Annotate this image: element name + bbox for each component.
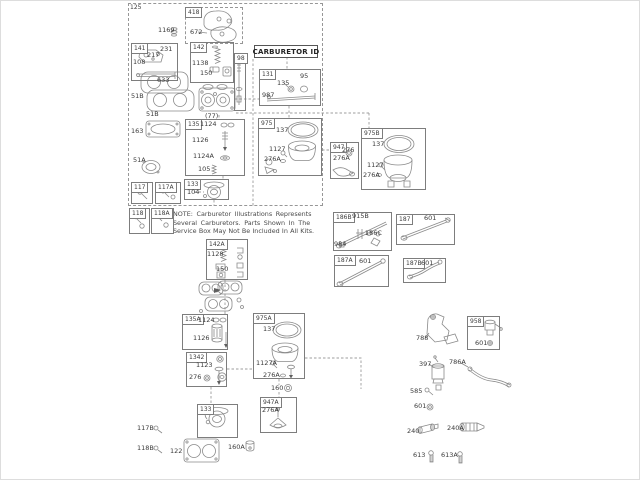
part-callout: 984	[334, 241, 346, 248]
part-callout: 1123	[196, 362, 213, 369]
part-callout: 186C	[365, 230, 382, 237]
gasket-cluster-illustration	[199, 281, 244, 313]
part-callout: 1126	[192, 137, 209, 144]
part-group-box-975: 975	[258, 118, 322, 176]
part-group-label: 975	[258, 118, 275, 129]
part-callout: 122	[170, 448, 182, 455]
part-group-box-975B: 975B	[361, 128, 426, 190]
part-callout: 1128	[207, 251, 224, 258]
part-callout: 1124	[200, 121, 217, 128]
part-callout: 276	[342, 147, 354, 154]
part-group-label: 142A	[206, 239, 228, 250]
service-note-line-2: Several Carburetors. Parts Shown In The	[173, 219, 325, 228]
part-callout: 276	[189, 374, 201, 381]
part-callout: 613A	[441, 452, 458, 459]
part-callout: 1124A	[193, 153, 214, 160]
part-group-box-133: 133	[197, 404, 238, 438]
part-group-label: 117	[131, 182, 148, 193]
part-callout: (77)	[205, 113, 218, 120]
part-callout: 118B	[137, 445, 154, 452]
part-callout: 1127	[269, 146, 286, 153]
part-group-label: 142	[190, 42, 207, 53]
part-group-box-131: 131	[259, 69, 321, 106]
part-callout: 160	[271, 385, 283, 392]
part-callout: 160A	[228, 444, 245, 451]
part-group-label: 958	[467, 316, 484, 327]
part-callout: 150	[216, 266, 228, 273]
part-callout: 276A	[262, 407, 279, 414]
part-callout: 1169	[158, 27, 175, 34]
part-callout: 1138	[192, 60, 209, 67]
part-group-box-98: 98	[234, 53, 246, 111]
service-note-line-1: NOTE: Carburetor Illustrations Represent…	[173, 210, 325, 219]
part-callout: 915B	[352, 213, 369, 220]
part-callout: 585	[410, 388, 422, 395]
cap-160A-illustration	[246, 441, 254, 451]
part-group-box-117A: 117A	[155, 182, 181, 204]
part-callout: 601	[359, 258, 371, 265]
part-callout: 276A	[263, 372, 280, 379]
washer-601-illustration	[427, 404, 433, 410]
service-note: NOTE: Carburetor Illustrations Represent…	[173, 210, 325, 236]
part-callout: 987	[262, 92, 274, 99]
part-group-label: 118A	[151, 208, 173, 219]
part-group-label: 117A	[155, 182, 177, 193]
part-callout: 104	[187, 189, 199, 196]
part-callout: 51B	[146, 111, 159, 118]
part-callout: 1127	[367, 162, 384, 169]
part-group-box-1342: 1342	[186, 352, 227, 387]
part-callout: 231	[160, 46, 172, 53]
part-group-box-117: 117	[131, 182, 153, 204]
part-group-label: 98	[234, 53, 248, 64]
washer-160-illustration	[285, 385, 292, 392]
part-group-box-947A: 947A	[260, 397, 297, 433]
gasket-122-illustration	[184, 439, 219, 462]
part-callout: 240A	[447, 425, 464, 432]
part-group-label: 975A	[253, 313, 275, 324]
part-callout: 117B	[137, 425, 154, 432]
part-callout: 240	[407, 428, 419, 435]
part-callout: 137	[263, 326, 275, 333]
part-callout: 217	[147, 52, 159, 59]
service-note-line-3: Service Box May Not Be Included In All K…	[173, 227, 325, 236]
part-callout: 601	[421, 260, 433, 267]
part-group-label: 118	[129, 208, 146, 219]
part-group-label: 141	[131, 43, 148, 54]
part-callout: 397	[419, 361, 431, 368]
part-group-label: 418	[185, 7, 202, 18]
part-callout: 108	[133, 59, 145, 66]
screw-icons-117B-118B	[154, 426, 162, 453]
part-group-label: 125	[128, 3, 143, 12]
part-callout: 601	[414, 403, 426, 410]
part-callout: 601	[475, 340, 487, 347]
part-callout: 788	[416, 335, 428, 342]
part-callout: 1126	[193, 335, 210, 342]
carburetor-parts-diagram: CARBURETOR ID NOTE: Carburetor Illustrat…	[0, 0, 640, 480]
part-group-label: 131	[259, 69, 276, 80]
part-callout: 51B	[131, 93, 144, 100]
part-callout: 1127A	[256, 360, 277, 367]
part-group-label: 975B	[361, 128, 383, 139]
part-callout: 137	[276, 127, 288, 134]
part-callout: 51A	[133, 157, 146, 164]
part-group-box-142A: 142A	[206, 239, 248, 280]
part-callout: 137	[372, 141, 384, 148]
part-callout: 276A	[264, 156, 281, 163]
part-callout: 276A	[363, 172, 380, 179]
part-callout: 672	[190, 29, 202, 36]
part-group-box-118: 118	[129, 208, 150, 234]
part-group-label: 187A	[334, 255, 356, 266]
part-callout: 135	[277, 80, 289, 87]
bracket-788-illustration	[425, 314, 458, 344]
part-callout: 1124	[198, 317, 215, 324]
part-group-box-418: 418	[185, 7, 243, 44]
part-callout: 633	[157, 77, 169, 84]
part-callout: 105	[198, 166, 210, 173]
part-callout: 601	[424, 215, 436, 222]
fitting-240-illustration	[418, 424, 438, 434]
part-group-box-118A: 118A	[151, 208, 174, 234]
part-group-box-975A: 975A	[253, 313, 305, 379]
part-callout: 613	[413, 452, 425, 459]
part-callout: 163	[131, 128, 143, 135]
link-786A-illustration	[461, 363, 511, 387]
part-callout: 150	[200, 70, 212, 77]
part-group-label: 187	[396, 214, 413, 225]
part-callout: 786A	[449, 359, 466, 366]
screw-585-illustration	[425, 388, 433, 395]
part-callout: 95	[300, 73, 308, 80]
part-group-label: 133	[197, 404, 214, 415]
part-callout: 276A	[333, 155, 350, 162]
